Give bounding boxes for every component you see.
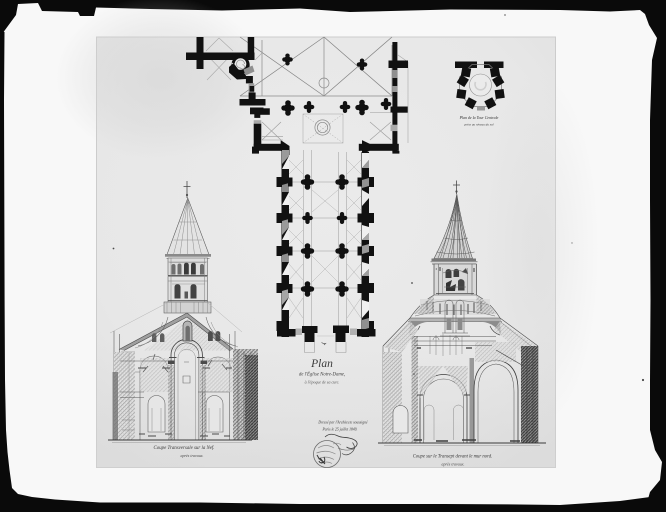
svg-text:après travaux.: après travaux. (441, 462, 464, 467)
svg-text:Coupe Transversale sur la Nef.: Coupe Transversale sur la Nef. (154, 446, 215, 451)
svg-text:Plan de la Tour Centrale: Plan de la Tour Centrale (459, 116, 499, 120)
svg-text:après travaux.: après travaux. (180, 453, 203, 458)
svg-text:prise au niveau du sol: prise au niveau du sol (463, 123, 493, 127)
svg-text:Dressé par l'Architecte soussi: Dressé par l'Architecte soussigné (317, 421, 368, 425)
svg-text:Coupe sur le Transept devant l: Coupe sur le Transept devant le mur nord… (413, 455, 493, 460)
svg-text:de l'Église Notre-Dame,: de l'Église Notre-Dame, (299, 372, 345, 378)
svg-text:Paris le 25 juillet 1849.: Paris le 25 juillet 1849. (322, 428, 358, 432)
svg-text:Plan: Plan (310, 358, 333, 370)
svg-text:à l'époque de sa cure.: à l'époque de sa cure. (305, 380, 340, 385)
